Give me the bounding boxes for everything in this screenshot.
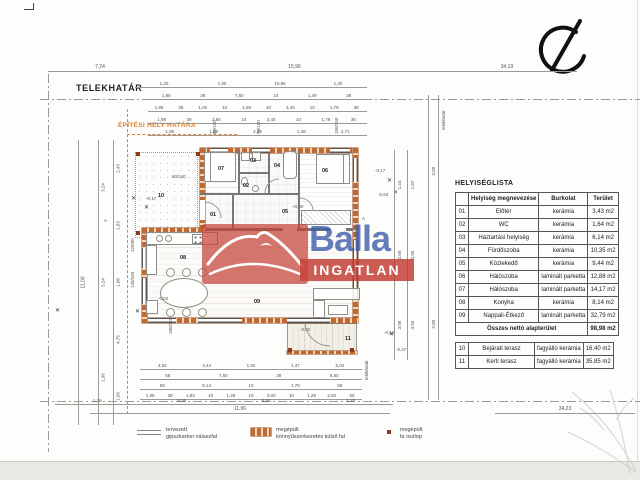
coffee-table-icon (328, 305, 348, 315)
dim-chain: 588,13101,7858 (140, 382, 362, 390)
col-header-floor: Burkolat (539, 193, 588, 206)
legend: tervezettgipszkarton válaszfal megépültk… (137, 427, 423, 441)
tree-marker-icon: ✕ (55, 308, 60, 314)
bed-pillow-icon (343, 154, 350, 184)
legend-item: megépültkönnyűszerkezetes külső fal (251, 427, 345, 441)
tree-marker-icon: ✕ (387, 178, 392, 184)
kitchen-sink-icon (165, 235, 172, 242)
table-row: 11Kerti teraszfagyálló kerámia35,85 m2 (456, 356, 614, 369)
plan-annotation: 150/150 (334, 118, 339, 134)
col-header-area: Terület (588, 193, 618, 206)
plan-annotation: 120/240 (130, 272, 135, 288)
chair-icon (166, 308, 175, 317)
legend-label: megépültkönnyűszerkezetes külső fal (276, 427, 345, 441)
sink-icon (252, 185, 259, 192)
plan-annotation: 80/150 (212, 120, 217, 134)
dining-table-icon (160, 278, 208, 308)
plan-annotation: telekhatár (441, 110, 446, 130)
washer-icon (252, 152, 261, 161)
chair-icon (182, 268, 191, 277)
site-boundary-line (127, 134, 237, 135)
window (148, 318, 176, 323)
bed-pillow-icon (204, 152, 211, 182)
toilet-icon (241, 177, 248, 186)
table-row: 03Háztartási helyiségkerámia6,14 m2 (456, 232, 619, 245)
table-row: 04Fürdőszobakerámia10,35 m2 (456, 245, 619, 258)
cabinet-icon (146, 300, 158, 314)
legend-symbol (251, 428, 271, 436)
legend-label: tervezettgipszkarton válaszfal (166, 427, 217, 441)
dim-chain (438, 95, 447, 400)
dim-chain: 1,201,9010,861,20 (135, 80, 367, 88)
watermark-logo: Balla INGATLAN (202, 222, 414, 284)
dim-chain: 3,924,431,921,475,04 (140, 362, 362, 370)
dim-chain: 34,23 (495, 406, 635, 414)
kitchen-sink-icon (156, 235, 163, 242)
chair-icon (182, 308, 191, 317)
dim-chain: 1,98381,00101,58103,45101,7838 (148, 104, 367, 112)
legend-symbol (387, 430, 391, 434)
dim-chain: 11,00 (78, 140, 87, 425)
kitchen-counter (146, 245, 157, 275)
legend-item: megépültfa oszlop (379, 427, 423, 441)
partition (298, 150, 300, 228)
dim-chain: 7,24 (48, 64, 152, 72)
sofa-icon (313, 300, 325, 318)
table-row: 08Konyhakerámia8,14 m2 (456, 297, 619, 310)
property-boundary-line-top (40, 99, 640, 100)
plan-annotation: -0,53 (378, 192, 388, 197)
partition (268, 150, 270, 193)
entrance-door-gap (200, 200, 205, 220)
tree-marker-icon: ✕ (393, 190, 398, 196)
plan-annotation: 120/60 (130, 238, 135, 252)
dim-chain: 3,003,00 (428, 95, 437, 400)
scan-corner-mark (33, 3, 34, 10)
chair-icon (198, 308, 207, 317)
plan-annotation: -0,17 (375, 168, 385, 173)
plan-annotation: telekhatár (364, 360, 369, 380)
scan-edge-line (637, 0, 638, 461)
sofa-icon (313, 288, 360, 300)
plan-annotation: -0,52 (384, 330, 394, 335)
dim-chain: 15,96 (152, 64, 437, 72)
chair-icon (166, 268, 175, 277)
terrace-table: 10Bejárati teraszfagyálló kerámia16,40 m… (455, 342, 614, 369)
dim-chain: 1,96381,82101,28103,00101,282,5058 (140, 392, 362, 400)
window (198, 318, 242, 323)
dim-chain: 11,96 (90, 406, 390, 414)
window (330, 148, 350, 153)
tree-marker-icon: ✕ (135, 309, 140, 315)
col-header-name: Helyiség megnevezése (469, 193, 539, 206)
watermark-sub-text: INGATLAN (300, 259, 414, 281)
scan-bottom-band (0, 461, 640, 480)
legend-label: megépültfa oszlop (400, 427, 423, 441)
site-boundary-line (127, 109, 128, 414)
table-row: 01Előtérkerámia3,43 m2 (456, 206, 619, 219)
table-row: 07Hálószobalaminált parketta14,17 m2 (456, 284, 619, 297)
plan-annotation: 90/150 (256, 120, 261, 134)
floor-entry-terrace-10 (135, 152, 198, 238)
terrace-door (287, 318, 330, 323)
dim-chain: 587,50386,50 (140, 372, 362, 380)
partition (200, 193, 300, 195)
room-list-title: HELYISÉGLISTA (455, 180, 513, 187)
property-boundary-line-left (48, 74, 49, 452)
dim-chain: 3,245,241,96 (98, 140, 107, 425)
table-row: 10Bejárati teraszfagyálló kerámia16,40 m… (456, 343, 614, 356)
window (353, 158, 358, 182)
dim-chain: 2,431,631,084,751,56 (113, 140, 122, 425)
terrace-edge (287, 351, 357, 354)
table-row: 09Nappali-Étkezőlaminált parketta32,79 m… (456, 310, 619, 323)
property-boundary-label: TELEKHATÁR (76, 83, 142, 93)
plan-annotation: A (104, 218, 107, 223)
plan-annotation: -0,47 (396, 347, 406, 352)
property-boundary-line-bottom (40, 401, 640, 402)
floor-garden-terrace-11 (287, 323, 357, 353)
table-sum-row: Összes nettó alapterület 98,98 m2 (456, 323, 619, 336)
partition (238, 172, 268, 174)
watermark-house-tile (202, 224, 308, 284)
table-row: 05Közlekedőkerámia9,44 m2 (456, 258, 619, 271)
legend-item: tervezettgipszkarton válaszfal (137, 427, 217, 441)
bathtub-icon (283, 151, 297, 179)
site-boundary-label: ÉPÍTÉSI HELY HATÁRA (118, 122, 196, 129)
north-arrow-icon (536, 16, 588, 86)
table-row: 02WCkerámia1,64 m2 (456, 219, 619, 232)
floor-plan-document: TELEKHATÁR ÉPÍTÉSI HELY HATÁRA (0, 0, 640, 480)
washer-icon (241, 152, 250, 161)
legend-symbol (137, 430, 161, 435)
watermark-brand-text: Balla (309, 218, 390, 260)
room-list-table: Helyiség megnevezése Burkolat Terület 01… (455, 192, 619, 336)
tree-marker-icon: ✕ (389, 332, 394, 338)
table-row: 06Hálószobalaminált parketta12,88 m2 (456, 271, 619, 284)
table-header-row: Helyiség megnevezése Burkolat Terület (456, 193, 619, 206)
